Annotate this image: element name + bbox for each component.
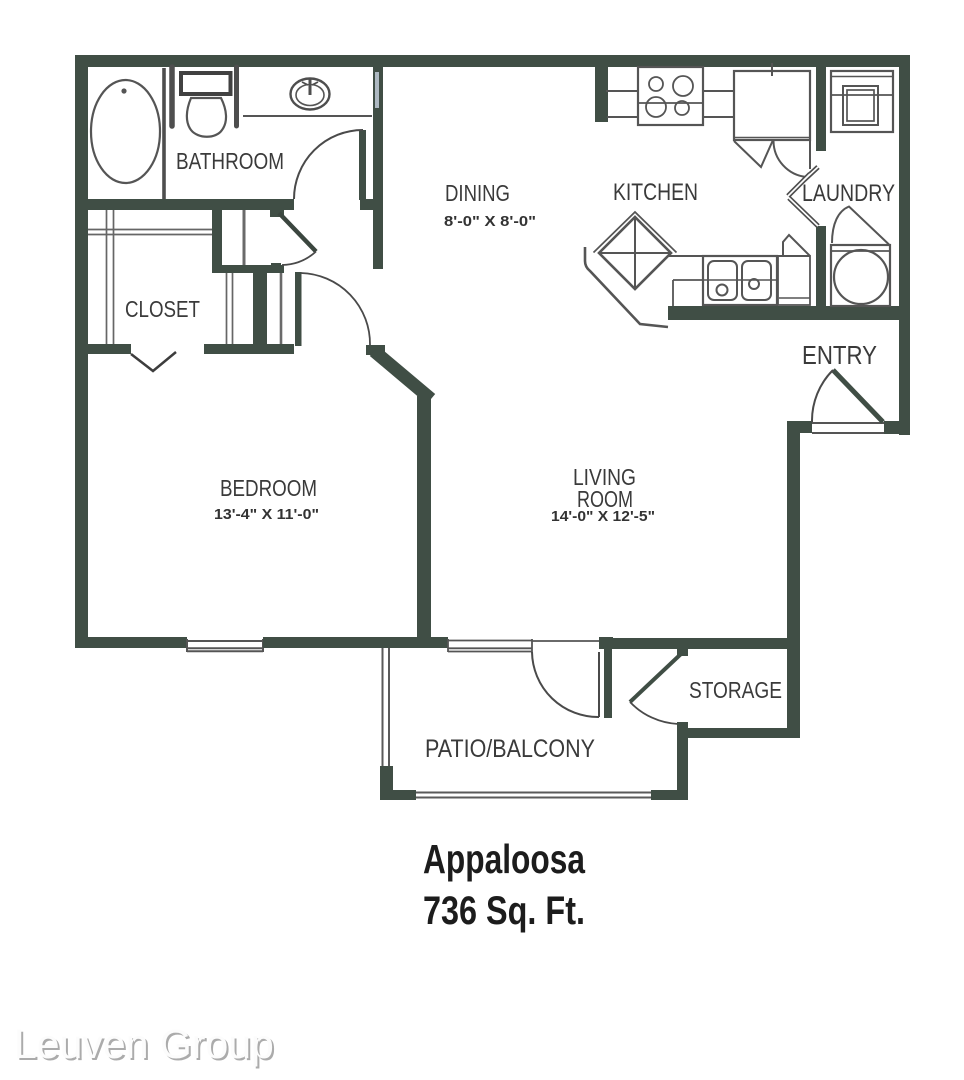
svg-text:DINING: DINING — [445, 180, 510, 206]
svg-text:Appaloosa: Appaloosa — [423, 836, 586, 882]
svg-text:BEDROOM: BEDROOM — [220, 475, 317, 501]
svg-text:BATHROOM: BATHROOM — [176, 148, 284, 174]
svg-text:STORAGE: STORAGE — [689, 677, 782, 703]
svg-text:Leuven Group: Leuven Group — [14, 1021, 274, 1067]
svg-text:ENTRY: ENTRY — [802, 340, 877, 370]
svg-text:736 Sq. Ft.: 736 Sq. Ft. — [423, 889, 585, 933]
svg-text:14'-0" X 12'-5": 14'-0" X 12'-5" — [551, 508, 655, 525]
svg-text:KITCHEN: KITCHEN — [613, 179, 698, 206]
svg-text:13'-4" X 11'-0": 13'-4" X 11'-0" — [214, 506, 319, 523]
svg-text:CLOSET: CLOSET — [125, 296, 200, 322]
svg-text:LAUNDRY: LAUNDRY — [802, 180, 895, 207]
svg-text:PATIO/BALCONY: PATIO/BALCONY — [425, 735, 595, 763]
svg-text:8'-0" X 8'-0": 8'-0" X 8'-0" — [444, 213, 536, 230]
